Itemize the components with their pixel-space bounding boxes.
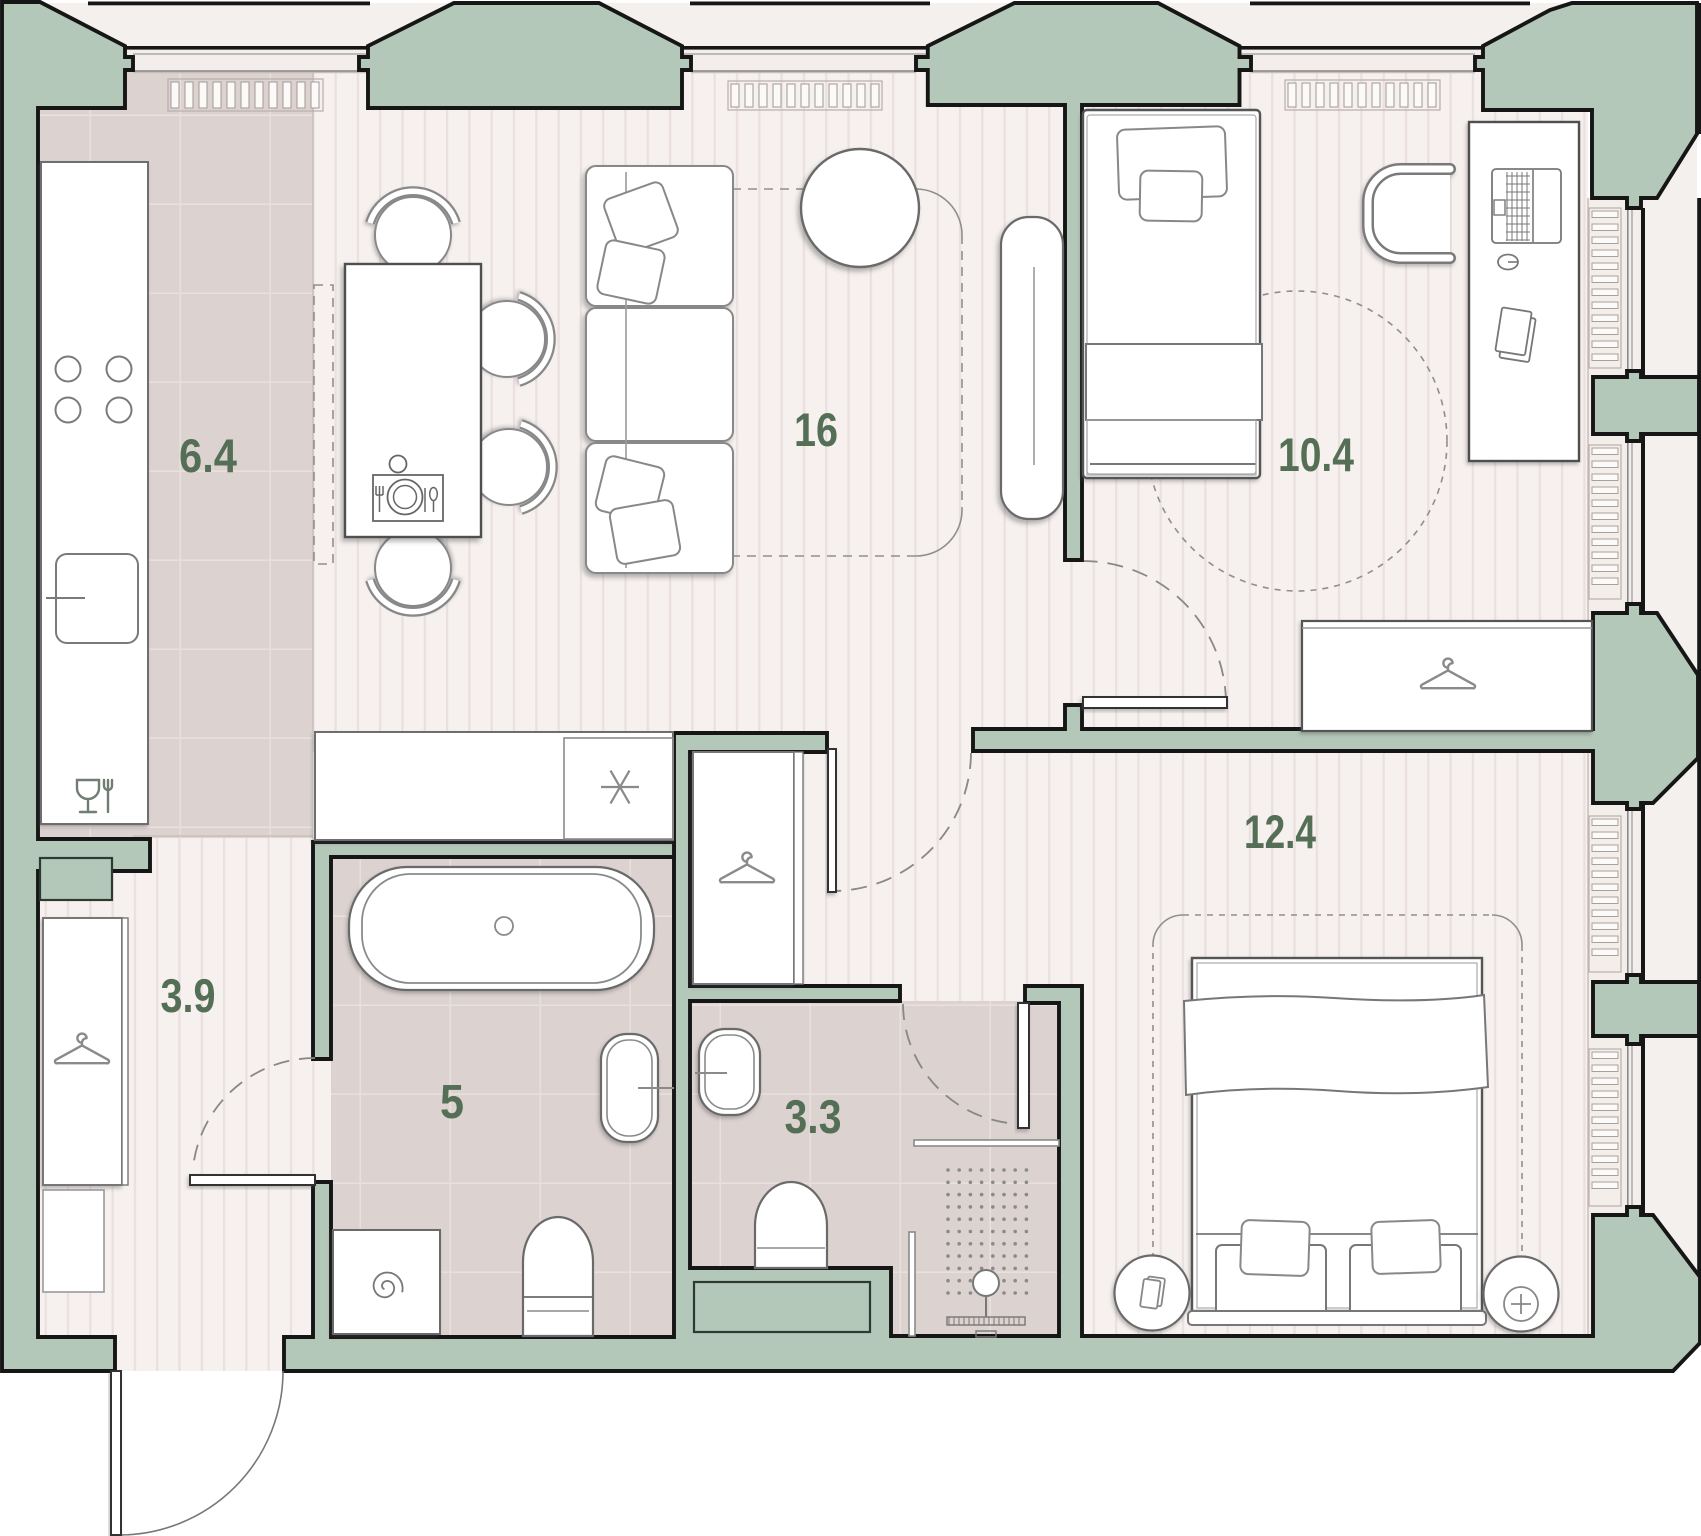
- svg-text:3.3: 3.3: [785, 1090, 842, 1143]
- svg-text:16: 16: [794, 403, 838, 456]
- svg-text:3.9: 3.9: [161, 969, 216, 1022]
- svg-text:12.4: 12.4: [1244, 805, 1316, 858]
- svg-text:6.4: 6.4: [179, 429, 237, 482]
- svg-text:10.4: 10.4: [1278, 428, 1354, 481]
- svg-text:5: 5: [440, 1076, 464, 1129]
